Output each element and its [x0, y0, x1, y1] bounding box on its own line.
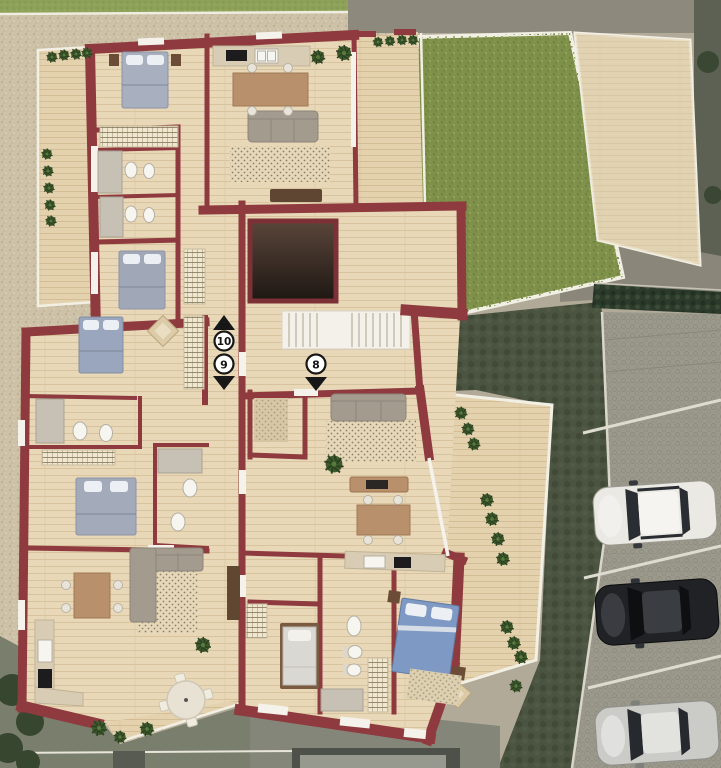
chair — [284, 107, 293, 116]
elevator-shaft — [250, 221, 336, 301]
car-roof — [642, 589, 683, 634]
window — [91, 252, 98, 294]
kitchen-sink — [364, 556, 385, 568]
kitchen-island — [350, 477, 408, 492]
door-gap — [294, 389, 318, 396]
unit-10-label: 10 — [217, 336, 232, 348]
chair — [284, 64, 293, 73]
wardrobe — [100, 126, 178, 147]
bidet — [144, 164, 155, 179]
kitchen-sink — [38, 640, 52, 662]
storage-mat-texture — [254, 398, 288, 442]
side-mirror — [633, 543, 642, 549]
kitchen-unit8 — [345, 551, 446, 571]
bed-single — [280, 623, 319, 689]
vanity-counter — [158, 449, 202, 473]
top-band — [348, 0, 721, 33]
glass-wall — [351, 52, 356, 147]
chair — [62, 581, 71, 590]
chair — [394, 496, 403, 505]
bed-double — [79, 317, 123, 373]
chair — [62, 604, 71, 613]
bed-double — [119, 251, 165, 309]
door-gap — [239, 575, 246, 597]
pillow — [288, 630, 311, 641]
pillow — [103, 320, 119, 330]
partition — [96, 240, 178, 242]
door-gap — [239, 470, 246, 494]
sink — [183, 479, 197, 497]
car-roof — [641, 711, 682, 754]
unit-8-label: 8 — [312, 359, 320, 372]
shower — [98, 151, 122, 193]
bidet — [100, 425, 113, 442]
wardrobe — [184, 249, 205, 304]
bed-double — [76, 478, 136, 535]
toilet-tank — [343, 646, 348, 658]
sofa-body — [248, 111, 318, 142]
pillow — [110, 481, 128, 492]
island-cooktop — [366, 480, 388, 489]
wardrobe — [42, 450, 115, 465]
partition — [96, 148, 178, 150]
floor-plan-image: 10 9 8 — [0, 0, 721, 768]
window — [18, 600, 25, 630]
cooktop — [394, 557, 411, 568]
nightstand — [171, 54, 181, 66]
sofa — [248, 111, 318, 142]
toilet — [171, 513, 185, 531]
toilet — [73, 422, 87, 440]
unit-9-label: 9 — [220, 359, 228, 372]
table-top — [74, 573, 110, 618]
chair — [394, 536, 403, 545]
tree — [697, 51, 719, 73]
pillow — [126, 55, 143, 65]
rug-texture — [230, 146, 330, 182]
table-top — [357, 505, 410, 535]
chair — [114, 581, 123, 590]
car-roof — [638, 490, 681, 535]
cooktop — [226, 50, 247, 61]
wardrobe — [184, 316, 204, 389]
side-mirror — [635, 643, 644, 649]
pillow — [144, 254, 161, 264]
bidet — [347, 664, 361, 676]
rug-texture — [326, 420, 416, 462]
side-mirror — [631, 700, 640, 706]
chair — [114, 604, 123, 613]
door-gap — [239, 352, 246, 376]
partition — [242, 553, 345, 556]
kitchen-top-unit — [213, 46, 310, 66]
pillow — [147, 55, 164, 65]
cooktop — [38, 669, 52, 688]
sofa-body — [331, 394, 406, 421]
tall-cabinet — [227, 566, 240, 620]
chair — [248, 64, 257, 73]
tv-bench — [270, 189, 322, 202]
nightstand — [387, 590, 401, 604]
chair — [364, 536, 373, 545]
window — [91, 146, 98, 192]
sink — [347, 616, 361, 636]
staircase — [282, 311, 410, 349]
bidet — [144, 208, 155, 223]
wardrobe — [246, 604, 267, 638]
shower — [321, 689, 363, 711]
side-mirror — [629, 480, 638, 486]
sofa — [331, 394, 406, 421]
toilet — [125, 162, 137, 178]
nightstand — [109, 54, 119, 66]
side-mirror — [631, 578, 640, 584]
window — [138, 38, 164, 46]
toilet — [125, 206, 137, 222]
pillow — [84, 481, 102, 492]
shower — [36, 399, 64, 443]
adjacent-structure — [113, 751, 145, 768]
table-top — [233, 73, 308, 106]
toilet — [348, 646, 362, 659]
wall-core-east — [461, 206, 462, 316]
window — [256, 32, 282, 40]
northeast-terrace — [356, 32, 423, 206]
car-black-sedan — [594, 573, 721, 651]
adjacent-roof-inner — [300, 755, 446, 768]
chair — [364, 496, 373, 505]
floor-plan-svg: 10 9 8 — [0, 0, 721, 768]
side-mirror — [635, 763, 644, 768]
sofa-chaise — [130, 548, 156, 622]
parapet-stub — [394, 29, 416, 35]
wardrobe — [368, 658, 388, 712]
window — [18, 420, 25, 446]
pillow — [123, 254, 140, 264]
shower — [100, 197, 123, 237]
partition — [28, 396, 135, 398]
wall-unit9-west — [22, 332, 26, 708]
pillow — [83, 320, 99, 330]
chair — [248, 107, 257, 116]
